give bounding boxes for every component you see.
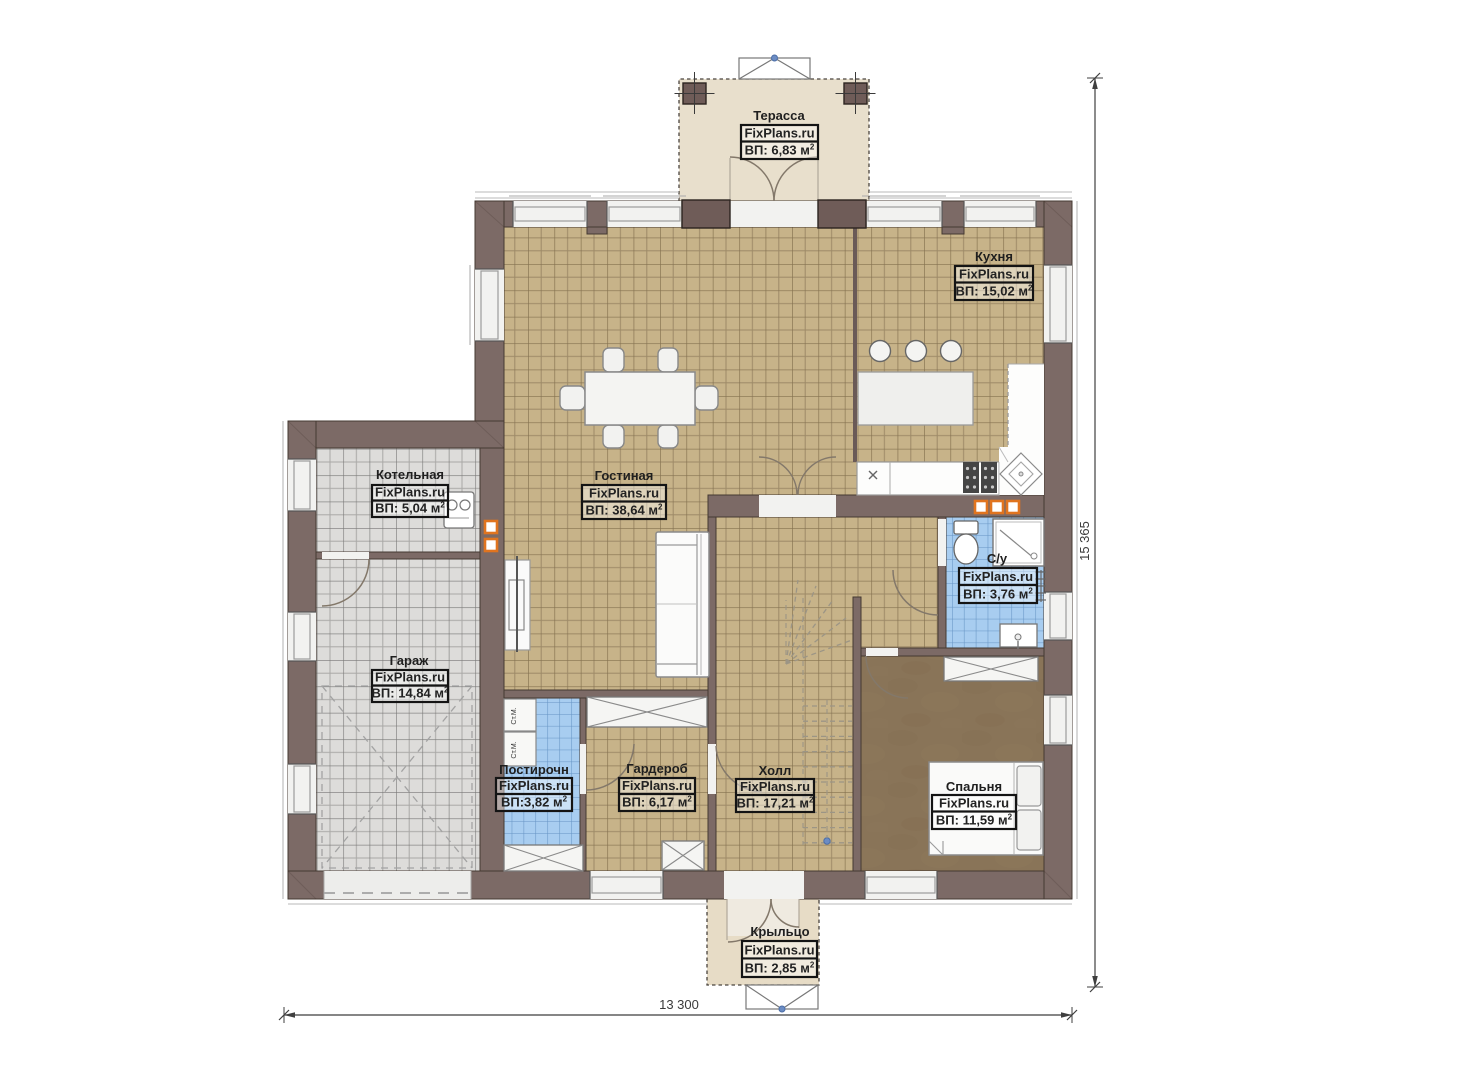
svg-text:15 365: 15 365 bbox=[1077, 521, 1092, 561]
svg-text:Постирочн: Постирочн bbox=[499, 762, 569, 777]
svg-text:ВП: 38,64 м2: ВП: 38,64 м2 bbox=[586, 503, 663, 518]
svg-text:Кухня: Кухня bbox=[975, 249, 1013, 264]
svg-text:Терасса: Терасса bbox=[753, 108, 805, 123]
svg-text:Гараж: Гараж bbox=[390, 653, 430, 668]
svg-text:13 300: 13 300 bbox=[659, 997, 699, 1012]
svg-text:FixPlans.ru: FixPlans.ru bbox=[744, 125, 814, 140]
svg-text:FixPlans.ru: FixPlans.ru bbox=[740, 779, 810, 794]
svg-text:FixPlans.ru: FixPlans.ru bbox=[959, 266, 1029, 281]
svg-text:ВП: 3,76 м2: ВП: 3,76 м2 bbox=[963, 587, 1033, 602]
svg-text:FixPlans.ru: FixPlans.ru bbox=[589, 485, 659, 500]
svg-text:ВП: 6,83 м2: ВП: 6,83 м2 bbox=[745, 143, 815, 158]
svg-text:ВП: 5,04 м2: ВП: 5,04 м2 bbox=[375, 501, 445, 516]
svg-text:Крыльцо: Крыльцо bbox=[750, 924, 809, 939]
svg-text:С/у: С/у bbox=[987, 551, 1008, 566]
svg-text:ВП: 17,21 м2: ВП: 17,21 м2 bbox=[737, 796, 814, 811]
svg-text:ВП:3,82 м2: ВП:3,82 м2 bbox=[501, 795, 568, 810]
svg-text:Гостиная: Гостиная bbox=[595, 468, 654, 483]
svg-text:ВП: 6,17 м2: ВП: 6,17 м2 bbox=[622, 795, 692, 810]
svg-text:FixPlans.ru: FixPlans.ru bbox=[744, 942, 814, 957]
svg-text:FixPlans.ru: FixPlans.ru bbox=[375, 670, 445, 685]
svg-text:Гардероб: Гардероб bbox=[626, 761, 687, 776]
svg-text:ВП: 15,02 м2: ВП: 15,02 м2 bbox=[956, 284, 1033, 299]
svg-text:FixPlans.ru: FixPlans.ru bbox=[939, 795, 1009, 810]
svg-text:Холл: Холл bbox=[759, 763, 792, 778]
svg-text:ВП: 2,85 м2: ВП: 2,85 м2 bbox=[745, 961, 815, 976]
svg-text:FixPlans.ru: FixPlans.ru bbox=[622, 778, 692, 793]
svg-text:ВП: 11,59 м2: ВП: 11,59 м2 bbox=[936, 813, 1013, 828]
svg-text:FixPlans.ru: FixPlans.ru bbox=[499, 778, 569, 793]
svg-text:Спальня: Спальня bbox=[946, 779, 1002, 794]
svg-text:FixPlans.ru: FixPlans.ru bbox=[375, 485, 445, 500]
svg-text:FixPlans.ru: FixPlans.ru bbox=[963, 569, 1033, 584]
svg-text:Ст.М.: Ст.М. bbox=[511, 741, 518, 758]
svg-text:Котельная: Котельная bbox=[376, 467, 444, 482]
svg-text:Ст.М.: Ст.М. bbox=[511, 707, 518, 724]
svg-text:ВП: 14,84 м2: ВП: 14,84 м2 bbox=[372, 686, 449, 701]
